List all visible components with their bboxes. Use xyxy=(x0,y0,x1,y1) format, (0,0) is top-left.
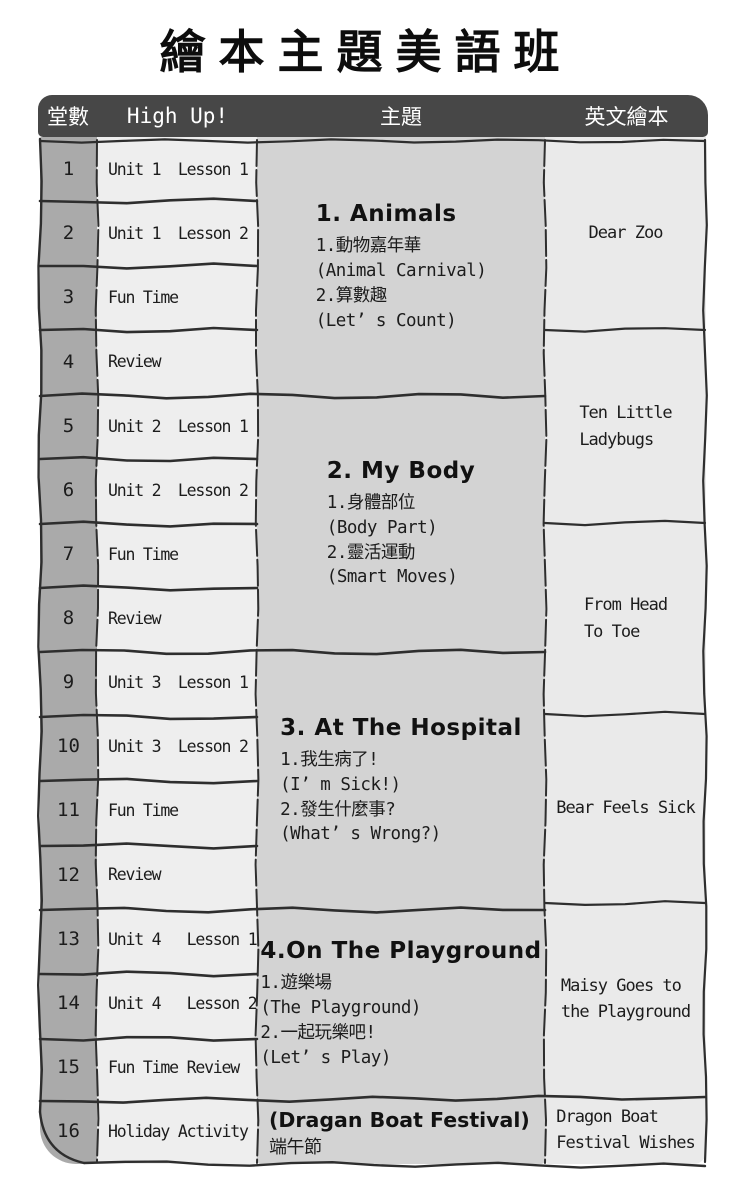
lesson-title: Unit 4 Lesson 2 xyxy=(97,971,257,1035)
page-title: 繪本主題美語班 xyxy=(0,16,732,82)
schedule-poster: 繪本主題美語班 堂數 High Up! 主題 英文繪本 1Unit 1 Less… xyxy=(0,0,732,1200)
lesson-number: 10 xyxy=(40,714,97,778)
theme-details: 1.動物嘉年華 (Animal Carnival) 2.算數趣 (Let’ s … xyxy=(316,234,487,333)
theme-cell-my-body: 2. My Body 1.身體部位 (Body Part) 2.靈活運動 (Sm… xyxy=(257,396,545,652)
header-book: 英文繪本 xyxy=(545,95,708,137)
book-cell: Dear Zoo xyxy=(545,137,706,330)
theme-heading: (Dragan Boat Festival) xyxy=(269,1108,530,1132)
book-title: Bear Feels Sick xyxy=(556,795,695,821)
lesson-title: Holiday Activity xyxy=(97,1099,257,1163)
lesson-title: Review xyxy=(97,842,257,907)
lesson-title: Review xyxy=(97,329,257,394)
lesson-title: Fun Time xyxy=(97,265,257,329)
table-header: 堂數 High Up! 主題 英文繪本 xyxy=(38,95,708,137)
lesson-number: 14 xyxy=(40,971,97,1035)
book-cell: Dragon Boat Festival Wishes xyxy=(545,1095,706,1165)
lesson-title: Fun Time xyxy=(97,522,257,586)
lesson-number: 11 xyxy=(40,778,97,842)
lesson-title: Unit 3 Lesson 1 xyxy=(97,650,257,714)
book-cell: Ten Little Ladybugs xyxy=(545,330,706,523)
theme-details: 1.我生病了! (I’ m Sick!) 2.發生什麼事? (What’ s W… xyxy=(280,748,522,847)
book-cell: From Head To Toe xyxy=(545,523,706,714)
book-cell: Bear Feels Sick xyxy=(545,714,706,903)
theme-heading: 2. My Body xyxy=(327,458,475,484)
lesson-number: 12 xyxy=(40,842,97,907)
lesson-number: 5 xyxy=(40,394,97,458)
lesson-number: 4 xyxy=(40,329,97,394)
book-cell: Maisy Goes to the Playground xyxy=(545,903,706,1095)
theme-cell-on-the-playground: 4.On The Playground 1.遊樂場 (The Playgroun… xyxy=(257,910,545,1099)
theme-cell-at-the-hospital: 3. At The Hospital 1.我生病了! (I’ m Sick!) … xyxy=(257,652,545,910)
lesson-title: Unit 2 Lesson 2 xyxy=(97,458,257,522)
header-curriculum: High Up! xyxy=(98,95,257,137)
lesson-title: Fun Time Review xyxy=(97,1035,257,1099)
theme-details: 1.身體部位 (Body Part) 2.靈活運動 (Smart Moves) xyxy=(327,491,475,590)
book-title: From Head To Toe xyxy=(584,592,667,645)
lesson-number: 8 xyxy=(40,586,97,650)
header-lesson-number: 堂數 xyxy=(38,95,98,137)
book-title: Maisy Goes to the Playground xyxy=(561,973,690,1026)
theme-details: 1.遊樂場 (The Playground) 2.一起玩樂吧! (Let’ s … xyxy=(260,971,541,1070)
book-title: Dragon Boat Festival Wishes xyxy=(556,1104,695,1157)
lesson-number: 3 xyxy=(40,265,97,329)
theme-cell-animals: 1. Animals 1.動物嘉年華 (Animal Carnival) 2.算… xyxy=(257,139,545,396)
header-theme: 主題 xyxy=(257,95,545,137)
lesson-title: Unit 1 Lesson 1 xyxy=(97,137,257,201)
lesson-title: Fun Time xyxy=(97,778,257,842)
lesson-title: Review xyxy=(97,586,257,650)
book-title: Dear Zoo xyxy=(589,220,663,246)
theme-heading: 3. At The Hospital xyxy=(280,715,522,741)
lesson-number: 7 xyxy=(40,522,97,586)
theme-details: 端午節 xyxy=(269,1135,530,1161)
lesson-number: 9 xyxy=(40,650,97,714)
book-title: Ten Little Ladybugs xyxy=(579,400,671,453)
lesson-title: Unit 3 Lesson 2 xyxy=(97,714,257,778)
lesson-number: 6 xyxy=(40,458,97,522)
lesson-number: 1 xyxy=(40,137,97,201)
lesson-number: 15 xyxy=(40,1035,97,1099)
lesson-number: 2 xyxy=(40,201,97,265)
theme-heading: 4.On The Playground xyxy=(260,938,541,964)
lesson-title: Unit 4 Lesson 1 xyxy=(97,907,257,971)
lesson-title: Unit 2 Lesson 1 xyxy=(97,394,257,458)
lesson-title: Unit 1 Lesson 2 xyxy=(97,201,257,265)
theme-cell-dragon-boat-festival: (Dragan Boat Festival) 端午節 xyxy=(257,1099,545,1164)
theme-heading: 1. Animals xyxy=(316,201,487,227)
lesson-number: 13 xyxy=(40,907,97,971)
lesson-number: 16 xyxy=(40,1099,97,1163)
